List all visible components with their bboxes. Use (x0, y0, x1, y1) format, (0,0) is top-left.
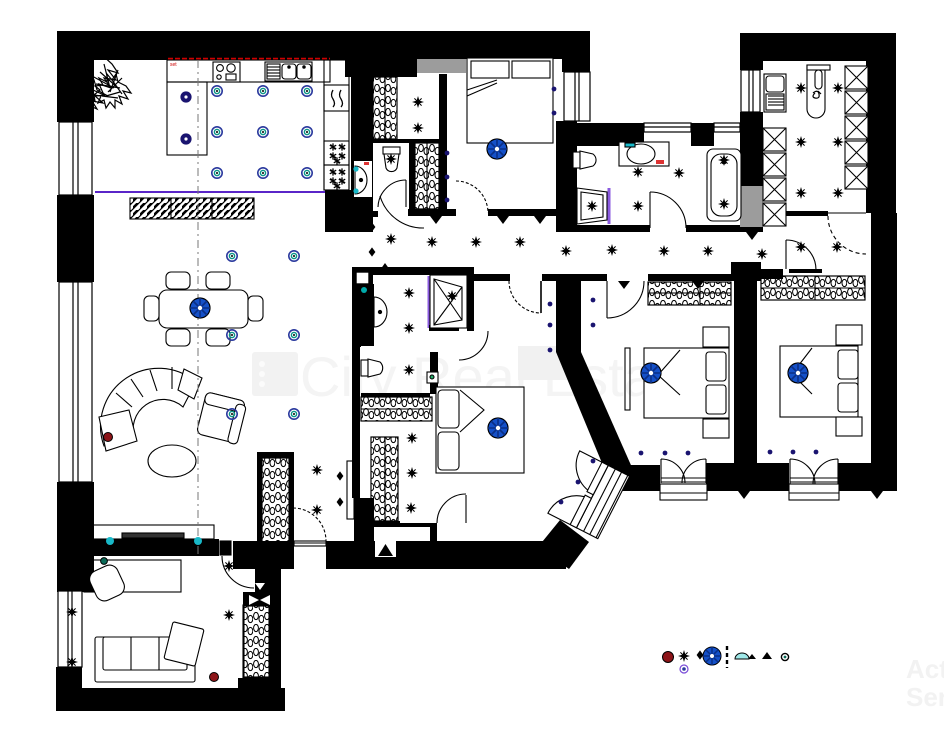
svg-text:Ser: Ser (906, 682, 944, 712)
svg-text:set: set (170, 62, 177, 68)
svg-text:Act: Act (906, 654, 944, 684)
